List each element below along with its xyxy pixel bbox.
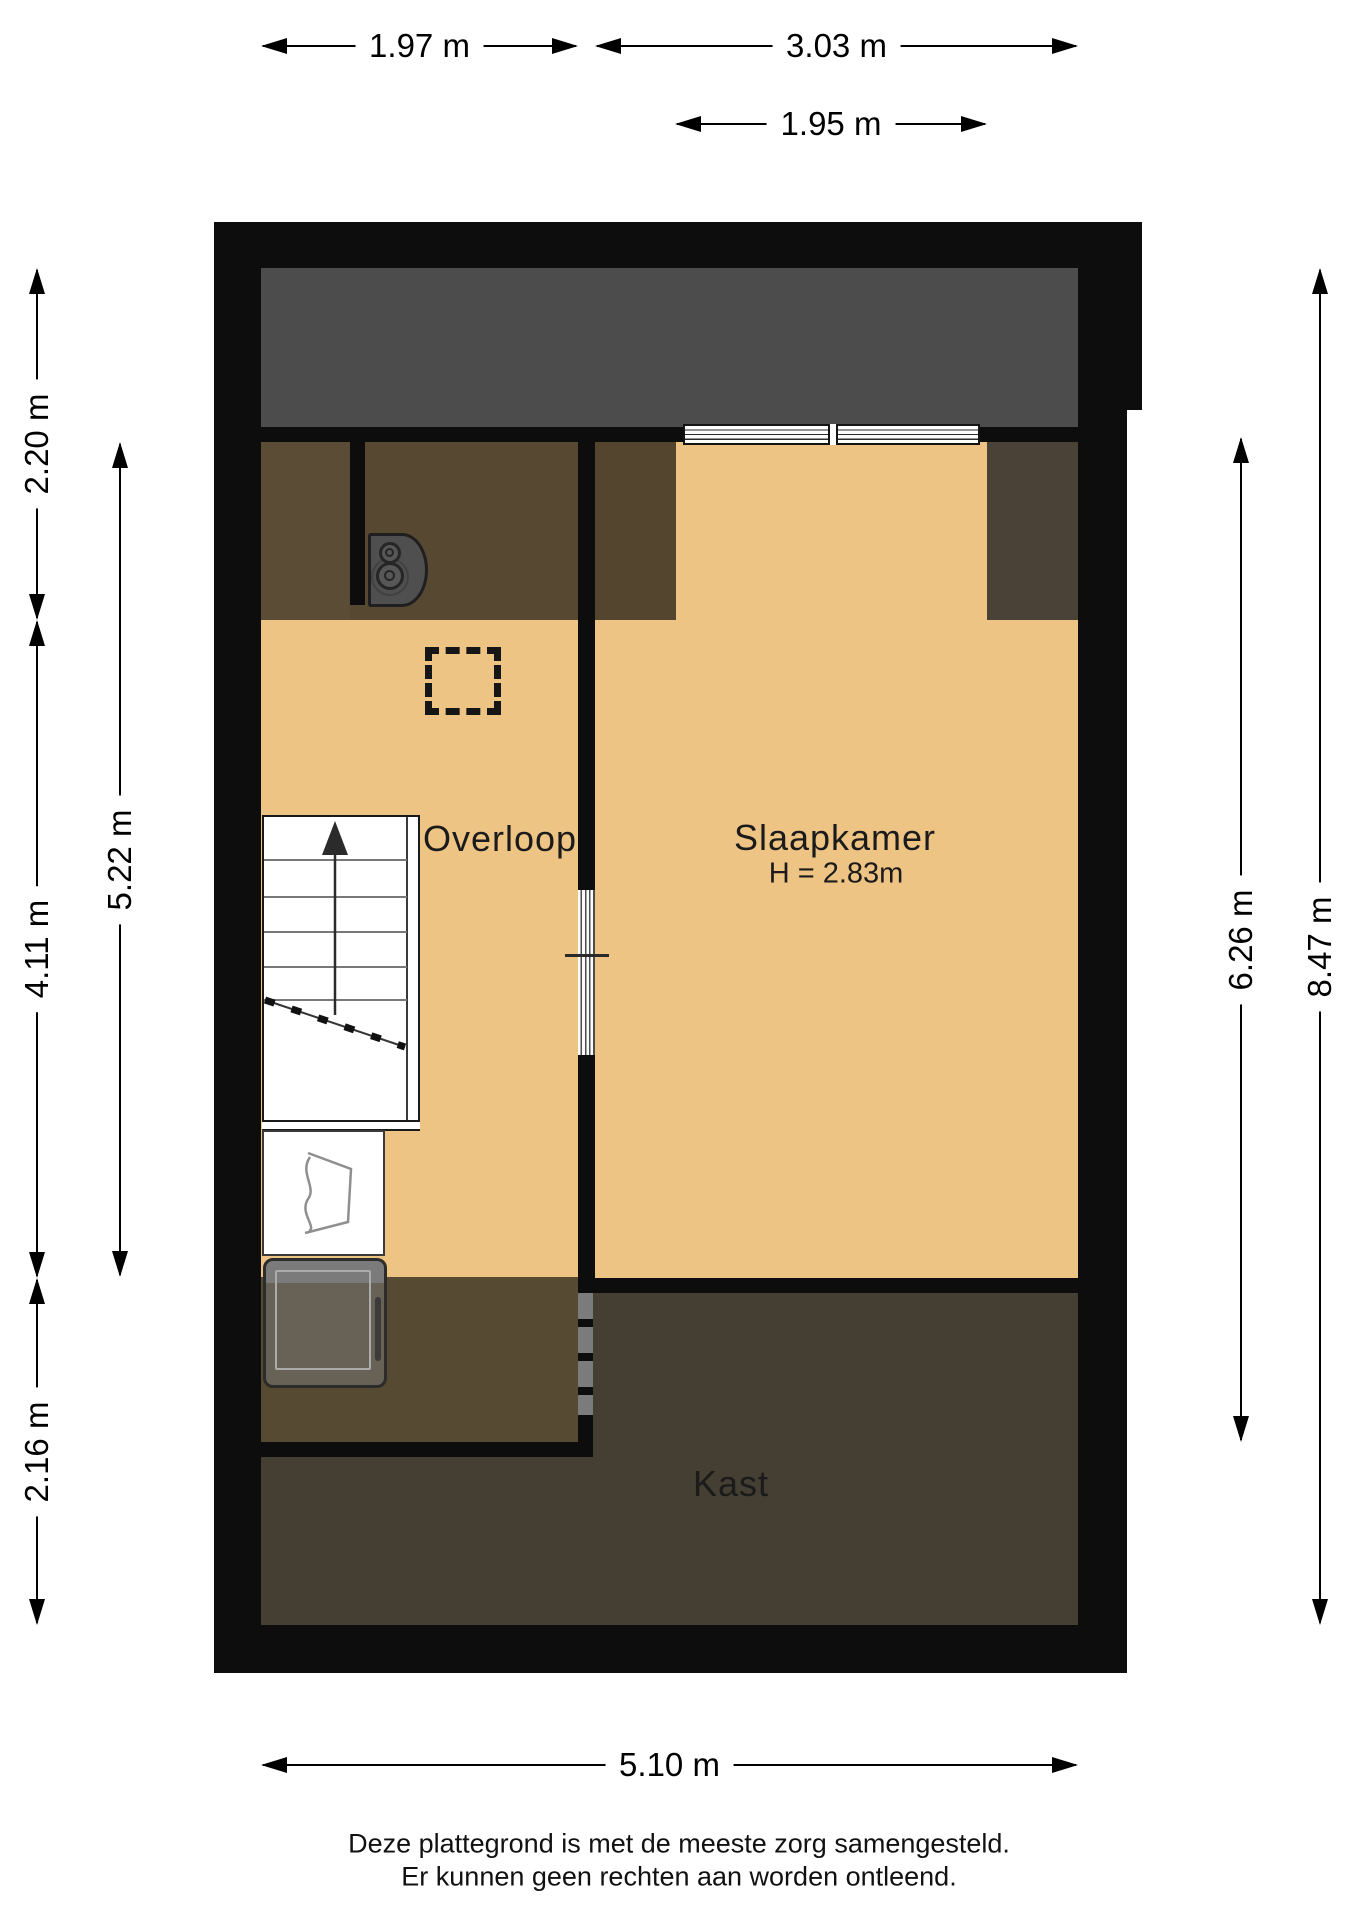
dimension-bottom-total-width: 5.10 m <box>261 1751 1078 1779</box>
slaapkamer-floor-top <box>676 442 987 620</box>
chimney-dashed-outline <box>425 647 501 715</box>
disclaimer-line-1: Deze plattegrond is met de meeste zorg s… <box>348 1829 1010 1860</box>
window-mullion <box>828 424 838 445</box>
outer-wall-top-right-step <box>1127 222 1142 410</box>
stair-direction-arrow-icon <box>322 821 348 855</box>
washbasin-cabinet <box>262 1130 385 1256</box>
boiler-bottom-knob-center <box>384 570 395 581</box>
overloop-attic-niche <box>261 442 350 620</box>
dimension-left-roof: 2.20 m <box>23 268 51 620</box>
slaapkamer-attic-left <box>595 442 676 620</box>
dimension-top-window: 1.95 m <box>675 110 987 138</box>
slaapkamer-attic-right <box>987 442 1078 620</box>
window <box>683 424 980 445</box>
dimension-left-middle: 4.11 m <box>23 620 51 1278</box>
boiler-unit <box>368 533 428 607</box>
slaapkamer-floor <box>595 620 1078 1278</box>
dimension-left-overloop-depth: 5.22 m <box>106 442 134 1277</box>
dashed-wall-segment <box>578 1293 593 1415</box>
slaapkamer-height-note: H = 2.83m <box>769 858 904 891</box>
staircase-drawing <box>264 817 418 1120</box>
washing-machine-handle <box>375 1297 381 1361</box>
kast-floor-left <box>261 1457 593 1625</box>
overloop-attic-connector <box>350 605 365 620</box>
dimension-right-slaapkamer-depth: 6.26 m <box>1227 437 1255 1442</box>
washing-machine <box>263 1258 387 1388</box>
dimension-left-bottom: 2.16 m <box>23 1278 51 1625</box>
dimension-top-overloop: 1.97 m <box>261 32 578 60</box>
slaapkamer-label: Slaapkamer <box>734 817 936 859</box>
staircase <box>262 815 420 1122</box>
overloop-label: Overloop <box>423 818 577 860</box>
door-threshold-mark <box>565 954 609 957</box>
roof-void-area <box>261 268 1078 427</box>
dimension-right-total-depth: 8.47 m <box>1306 268 1334 1625</box>
washing-machine-door <box>275 1270 371 1370</box>
door-opening <box>578 890 595 1055</box>
boiler-top-knob-center <box>385 548 394 557</box>
kast-label: Kast <box>693 1463 769 1505</box>
dimension-top-slaapkamer: 3.03 m <box>595 32 1078 60</box>
floorplan-page: Overloop Slaapkamer H = 2.83m Kast 1.97 … <box>0 0 1358 1920</box>
washbasin-symbol <box>264 1132 383 1254</box>
kast-floor-right <box>593 1293 1078 1625</box>
disclaimer-line-2: Er kunnen geen rechten aan worden ontlee… <box>401 1862 956 1893</box>
